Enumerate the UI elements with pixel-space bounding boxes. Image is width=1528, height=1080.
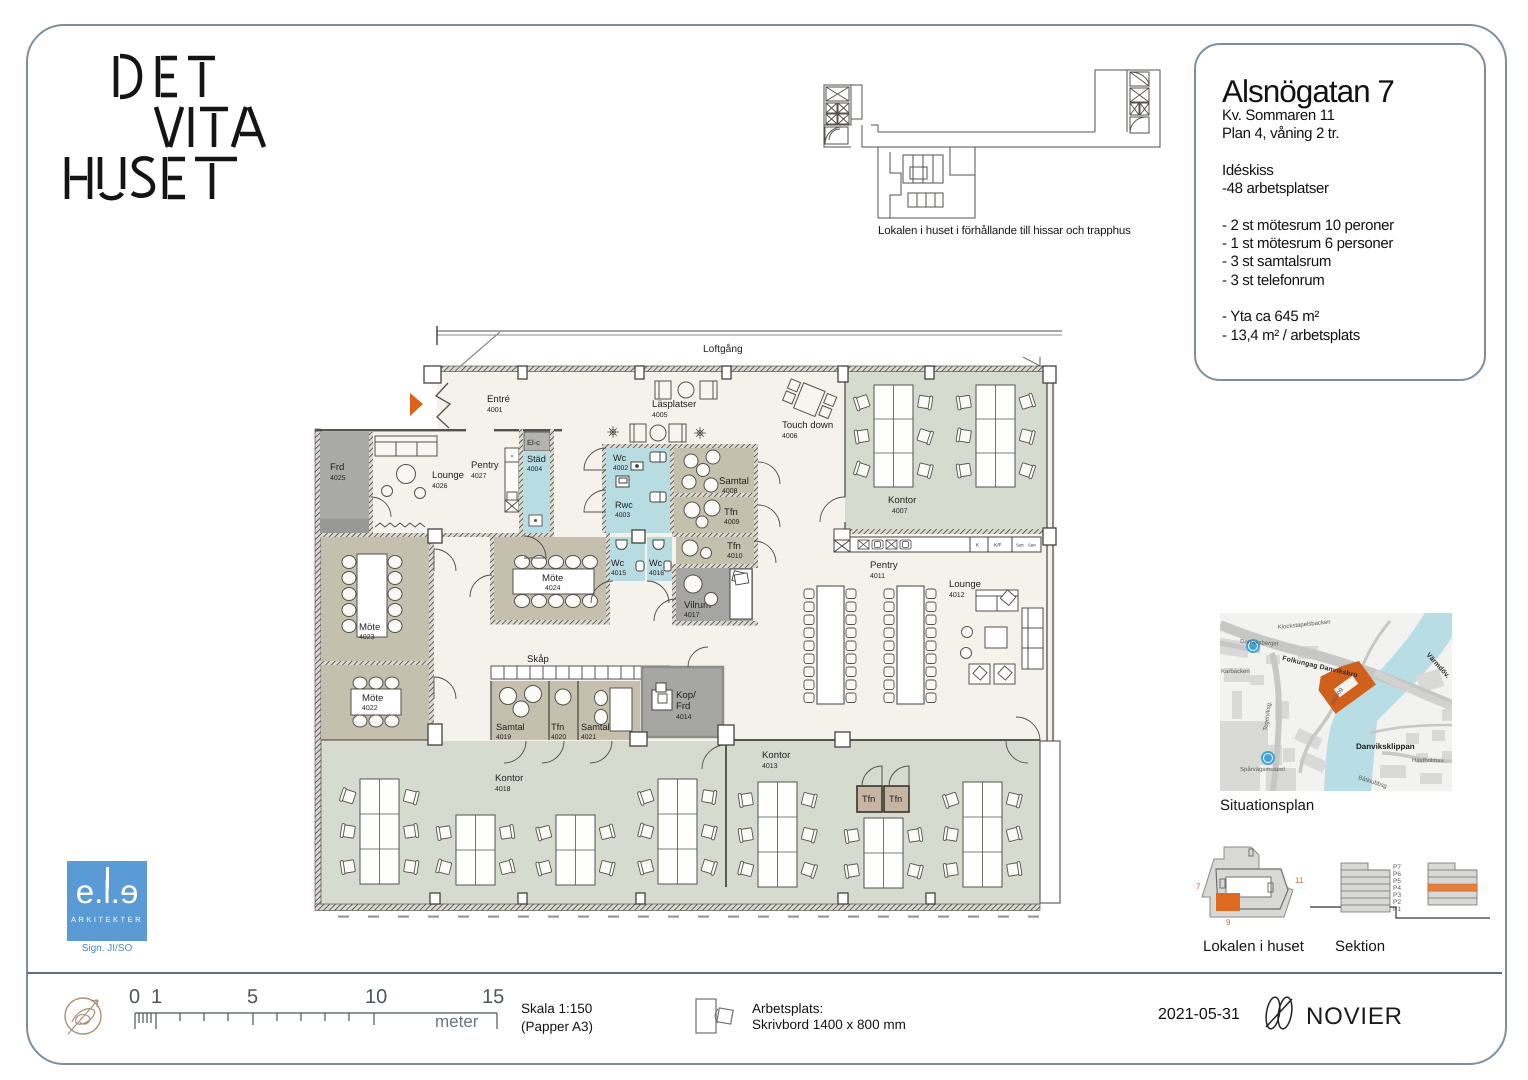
svg-text:4007: 4007 bbox=[892, 508, 908, 515]
svg-text:4013: 4013 bbox=[762, 763, 778, 770]
svg-text:Tfn: Tfn bbox=[724, 507, 738, 518]
svg-text:4010: 4010 bbox=[727, 553, 743, 560]
svg-text:Samtal: Samtal bbox=[496, 722, 525, 732]
svg-text:4001: 4001 bbox=[487, 407, 503, 414]
svg-text:4011: 4011 bbox=[870, 573, 885, 580]
svg-text:Lounge: Lounge bbox=[949, 579, 981, 590]
svg-text:Pentry: Pentry bbox=[471, 460, 499, 471]
svg-text:4012: 4012 bbox=[949, 592, 965, 599]
svg-text:+: + bbox=[510, 454, 514, 460]
svg-text:Tfn: Tfn bbox=[551, 722, 564, 732]
svg-text:4021: 4021 bbox=[581, 734, 596, 741]
svg-text:4025: 4025 bbox=[330, 475, 346, 482]
svg-text:9: 9 bbox=[1226, 918, 1231, 927]
svg-text:4018: 4018 bbox=[495, 786, 511, 793]
svg-text:Sort: Sort bbox=[1028, 543, 1037, 548]
svg-text:4023: 4023 bbox=[359, 634, 375, 641]
svg-text:Kontor: Kontor bbox=[888, 495, 917, 506]
svg-text:Samtal: Samtal bbox=[581, 722, 610, 732]
svg-text:4015: 4015 bbox=[611, 570, 626, 577]
svg-text:4016: 4016 bbox=[649, 570, 664, 577]
svg-text:Möte: Möte bbox=[359, 622, 380, 633]
svg-text:4027: 4027 bbox=[471, 473, 487, 480]
svg-text:Skåp: Skåp bbox=[527, 654, 549, 665]
svg-text:Tfn: Tfn bbox=[889, 794, 902, 804]
svg-text:Loftgång: Loftgång bbox=[703, 343, 743, 355]
svg-text:7: 7 bbox=[1196, 882, 1201, 891]
svg-text:Entré: Entré bbox=[487, 394, 510, 405]
svg-text:Tfn: Tfn bbox=[727, 541, 741, 552]
svg-text:4005: 4005 bbox=[652, 412, 668, 419]
svg-text:P7: P7 bbox=[1393, 864, 1401, 871]
svg-text:Spårvägsmuseet: Spårvägsmuseet bbox=[1240, 766, 1285, 773]
svg-text:10: 10 bbox=[365, 986, 387, 1008]
svg-text:4019: 4019 bbox=[496, 734, 511, 741]
svg-text:4009: 4009 bbox=[724, 519, 740, 526]
svg-text:Läsplatser: Läsplatser bbox=[652, 399, 697, 410]
svg-text:4026: 4026 bbox=[432, 483, 448, 490]
svg-text:Frd: Frd bbox=[676, 701, 690, 712]
svg-text:Kop/: Kop/ bbox=[676, 690, 696, 701]
svg-text:4017: 4017 bbox=[684, 612, 700, 619]
svg-text:Samtal: Samtal bbox=[719, 476, 749, 487]
svg-text:K/F: K/F bbox=[994, 543, 1002, 549]
svg-text:1: 1 bbox=[151, 986, 162, 1008]
svg-text:Lounge: Lounge bbox=[432, 470, 464, 481]
svg-text:Danviksklippan: Danviksklippan bbox=[1356, 742, 1415, 751]
svg-text:4014: 4014 bbox=[676, 714, 692, 721]
svg-text:P1: P1 bbox=[1393, 906, 1401, 913]
svg-text:4020: 4020 bbox=[551, 734, 566, 741]
svg-text:4022: 4022 bbox=[362, 705, 378, 712]
svg-text:4003: 4003 bbox=[615, 512, 630, 519]
svg-text:Möte: Möte bbox=[362, 693, 383, 704]
svg-text:Tfn: Tfn bbox=[862, 794, 875, 804]
svg-text:P5: P5 bbox=[1393, 878, 1401, 885]
svg-text:Kontor: Kontor bbox=[762, 750, 791, 761]
svg-text:Touch down: Touch down bbox=[782, 420, 833, 431]
svg-text:0: 0 bbox=[129, 986, 140, 1008]
svg-text:P4: P4 bbox=[1393, 885, 1401, 892]
svg-text:4004: 4004 bbox=[527, 466, 542, 473]
svg-text:Wc: Wc bbox=[611, 558, 625, 568]
svg-text:Pentry: Pentry bbox=[870, 560, 898, 571]
svg-text:Wc: Wc bbox=[649, 558, 663, 568]
svg-text:Möte: Möte bbox=[542, 573, 563, 584]
svg-text:P3: P3 bbox=[1393, 892, 1401, 899]
svg-text:meter: meter bbox=[435, 1012, 479, 1031]
svg-text:4024: 4024 bbox=[545, 585, 561, 592]
svg-text:Karbacken: Karbacken bbox=[1221, 668, 1250, 675]
svg-text:P2: P2 bbox=[1393, 899, 1401, 906]
svg-text:4002: 4002 bbox=[613, 465, 628, 472]
svg-text:11: 11 bbox=[1295, 876, 1304, 885]
svg-text:Frd: Frd bbox=[330, 462, 344, 473]
svg-text:15: 15 bbox=[482, 986, 504, 1008]
svg-text:4006: 4006 bbox=[782, 433, 798, 440]
svg-text:Kontor: Kontor bbox=[495, 773, 524, 784]
svg-text:Wc: Wc bbox=[613, 453, 627, 463]
svg-text:Sort: Sort bbox=[1016, 543, 1025, 548]
svg-text:5: 5 bbox=[247, 986, 258, 1008]
svg-text:El-c: El-c bbox=[527, 438, 540, 447]
svg-text:P6: P6 bbox=[1393, 871, 1401, 878]
svg-text:Rwc: Rwc bbox=[615, 500, 633, 510]
svg-text:Hästholmsv.: Hästholmsv. bbox=[1412, 757, 1445, 764]
svg-text:Städ: Städ bbox=[527, 454, 546, 464]
